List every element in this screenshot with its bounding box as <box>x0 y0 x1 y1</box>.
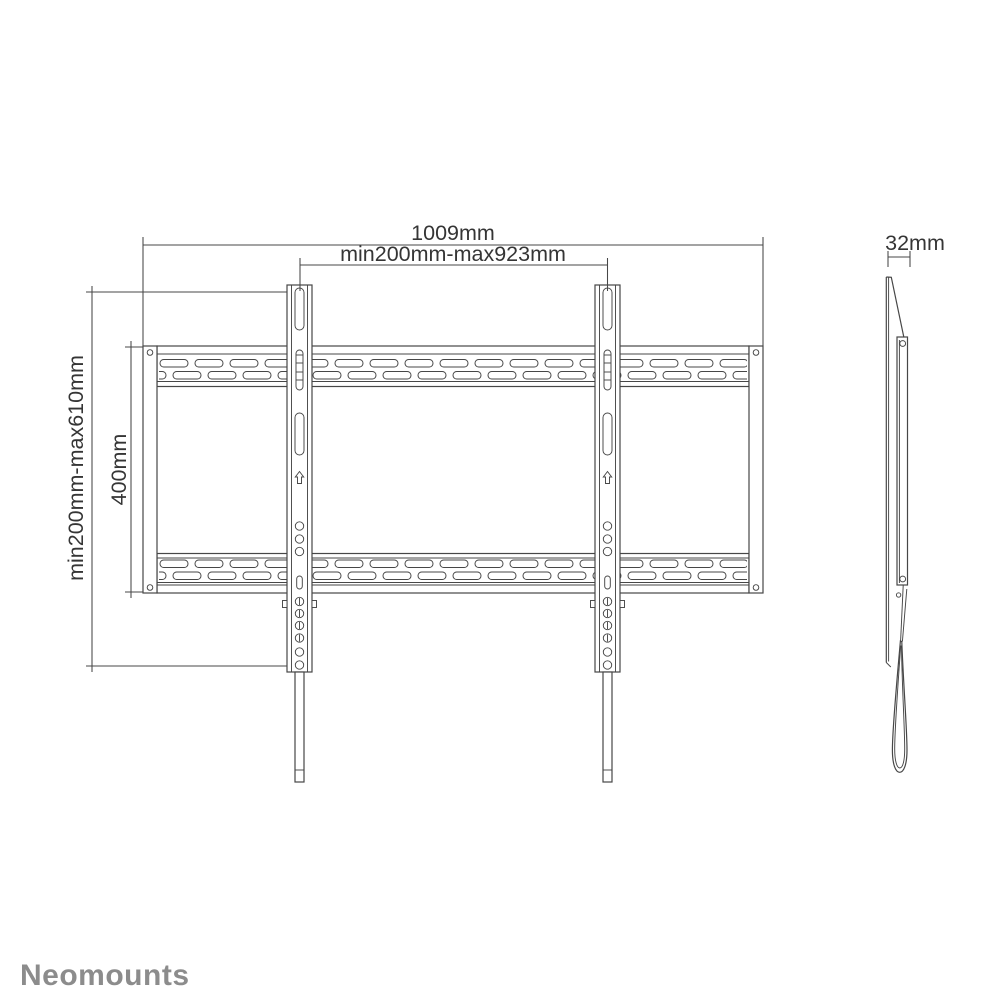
vesa-height-dimension-label: 400mm <box>107 434 131 506</box>
left-vesa-bracket <box>283 285 317 782</box>
hole-height-range-dimension: min200mm-max610mm <box>64 286 287 672</box>
page: 1009mm min200mm-max923mm min200mm-max610… <box>0 0 1004 1004</box>
right-vesa-bracket <box>591 285 625 782</box>
tv-mount-technical-drawing: 1009mm min200mm-max923mm min200mm-max610… <box>0 0 1004 1004</box>
lower-mounting-rail <box>157 554 749 594</box>
depth-dimension: 32mm <box>885 231 945 267</box>
side-profile <box>886 277 907 772</box>
side-view <box>886 277 907 772</box>
total-width-dimension: 1009mm <box>143 221 763 346</box>
upper-rail-slot-rows <box>159 359 747 380</box>
hole-width-range-dimension-label: min200mm-max923mm <box>340 242 566 266</box>
brand-logo: Neomounts <box>20 959 190 992</box>
lower-rail-slot-rows <box>159 560 747 581</box>
upper-mounting-rail <box>157 346 749 387</box>
dimension-annotations: 1009mm min200mm-max923mm min200mm-max610… <box>64 221 945 672</box>
hole-width-range-dimension: min200mm-max923mm <box>300 242 608 291</box>
vesa-height-dimension: 400mm <box>107 341 143 598</box>
depth-dimension-label: 32mm <box>885 231 945 255</box>
left-end-plate <box>143 346 157 593</box>
right-end-plate <box>749 346 763 593</box>
hole-height-range-dimension-label: min200mm-max610mm <box>64 355 88 581</box>
side-wall-plate <box>897 337 908 585</box>
front-view <box>143 285 763 782</box>
